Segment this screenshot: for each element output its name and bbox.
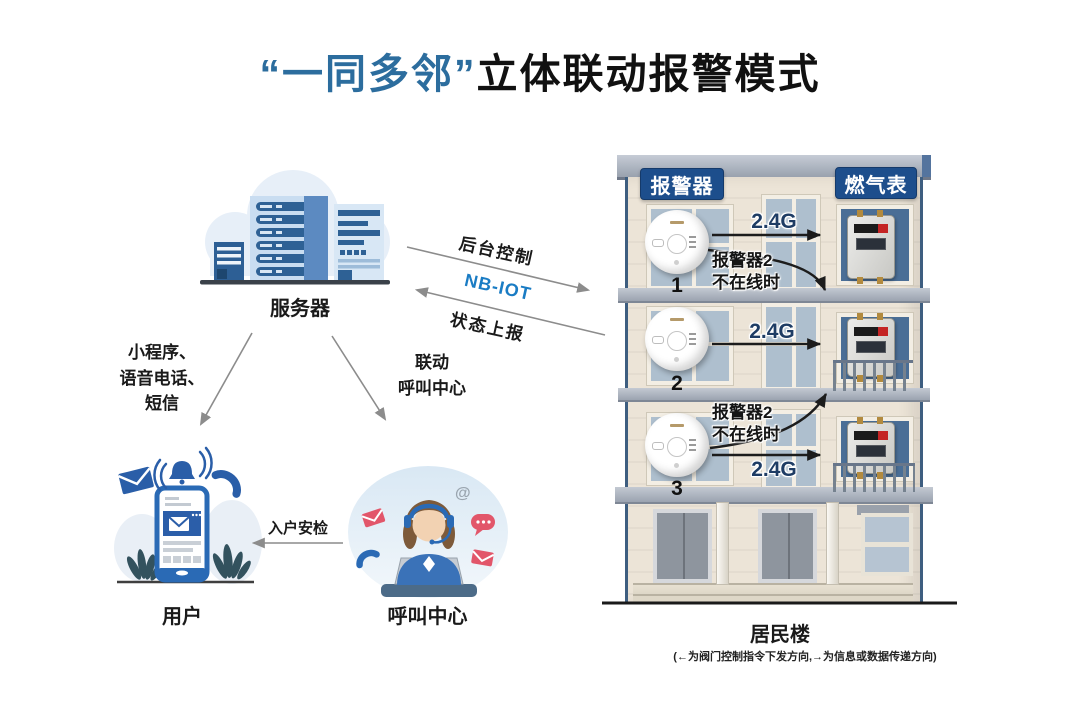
building-label: 居民楼 (680, 618, 880, 647)
diagram-canvas: “一同多邻”立体联动报警模式 (0, 0, 1080, 720)
status-report-label: 状态上报 (427, 300, 550, 350)
phone-handset-icon (216, 469, 242, 494)
bell-icon (154, 448, 211, 490)
alarm-number: 3 (645, 477, 709, 501)
entrance-door (653, 509, 712, 583)
balcony-railing (833, 360, 913, 391)
server-label: 服务器 (225, 292, 375, 321)
server-illustration (190, 166, 400, 290)
pillar (716, 502, 729, 585)
title-rest: 立体联动报警模式 (477, 51, 821, 97)
ground-window (861, 513, 913, 576)
link-2-4g-floor1: 2.4G (748, 210, 800, 234)
alarm-number: 1 (645, 274, 709, 298)
fallback-note-floor1: 报警器2 不在线时 (712, 250, 780, 294)
fallback-note-floor3: 报警器2 不在线时 (712, 402, 780, 446)
mail-icon (118, 466, 154, 494)
pillar (826, 502, 839, 585)
meter-badge: 燃气表 (835, 167, 917, 199)
gas-alarm-device-3 (645, 413, 709, 477)
nbiot-label: NB-IOT (449, 267, 547, 308)
entrance-steps (633, 583, 913, 603)
title-highlight: “一同多邻” (260, 51, 477, 97)
home-inspection-label: 入户安检 (255, 518, 341, 541)
smartphone-icon (157, 488, 207, 580)
gas-alarm-device-1 (645, 210, 709, 274)
user-illustration (112, 440, 262, 625)
linkage-text: 联动 呼叫中心 (378, 350, 486, 401)
call-center-illustration: @ (345, 458, 510, 643)
link-2-4g-floor3: 2.4G (748, 458, 800, 482)
link-2-4g-floor2: 2.4G (746, 320, 798, 344)
at-sign-icon: @ (455, 485, 471, 502)
gas-meter-1 (847, 215, 895, 279)
entrance-door (758, 509, 817, 583)
page-title: “一同多邻”立体联动报警模式 (0, 40, 1080, 100)
gas-alarm-device-2 (645, 307, 709, 371)
alarm-number: 2 (645, 372, 709, 396)
window (762, 303, 820, 391)
alarm-badge: 报警器 (640, 168, 724, 200)
notify-methods-text: 小程序、 语音电话、 短信 (102, 340, 222, 417)
direction-caption: (←为阀门控制指令下发方向,→为信息或数据传递方向) (640, 648, 970, 664)
balcony-railing (833, 463, 915, 492)
